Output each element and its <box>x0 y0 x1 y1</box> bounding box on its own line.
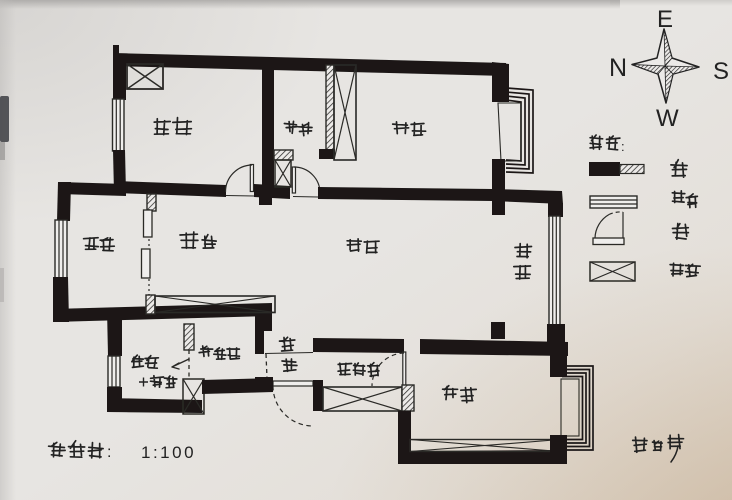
svg-text:1:100: 1:100 <box>141 443 196 462</box>
svg-text:W: W <box>656 105 679 132</box>
svg-text::: : <box>621 139 625 154</box>
svg-text::: : <box>107 444 111 461</box>
svg-text:E: E <box>657 6 673 33</box>
svg-text:S: S <box>713 58 729 85</box>
svg-text:N: N <box>609 54 627 82</box>
